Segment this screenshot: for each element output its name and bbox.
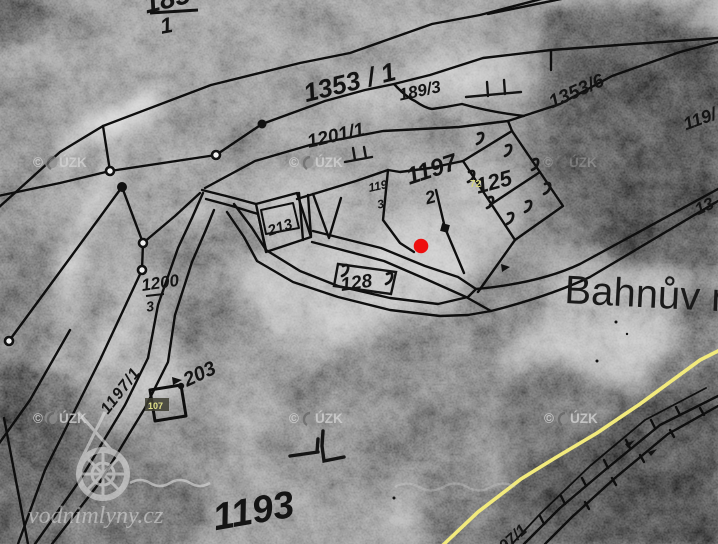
svg-text:©: © (33, 411, 43, 426)
svg-text:72: 72 (470, 179, 482, 190)
svg-text:ÚZK: ÚZK (315, 155, 343, 170)
svg-text:©: © (33, 155, 43, 170)
svg-text:©: © (289, 411, 299, 426)
svg-text:©: © (544, 411, 554, 426)
svg-text:107: 107 (148, 401, 163, 411)
svg-text:ÚZK: ÚZK (569, 155, 597, 170)
svg-text:ÚZK: ÚZK (315, 411, 343, 426)
svg-text:Bahnův n: Bahnův n (564, 268, 718, 321)
svg-text:ÚZK: ÚZK (59, 155, 87, 170)
svg-text:©: © (543, 155, 553, 170)
svg-text:ÚZK: ÚZK (570, 411, 598, 426)
svg-text:©: © (289, 155, 299, 170)
svg-text:vodnimlyny.cz: vodnimlyny.cz (28, 503, 164, 529)
